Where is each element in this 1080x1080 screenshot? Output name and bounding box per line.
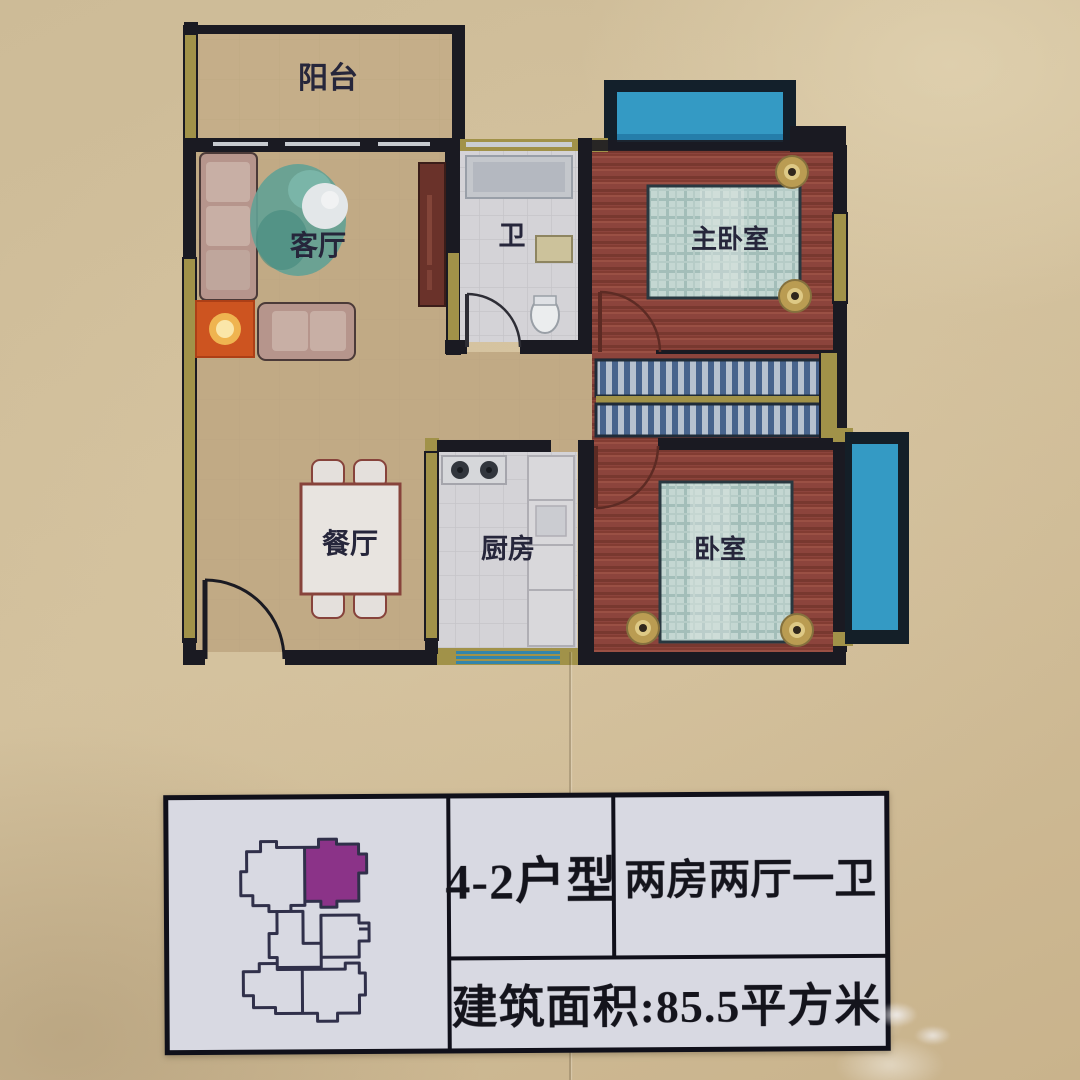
right-wall-upper	[833, 145, 847, 215]
bath-master-wall	[578, 138, 594, 354]
hallway-floor-grid	[446, 352, 602, 452]
dining-kitchen-wall	[425, 452, 438, 640]
room-bedroom: 卧室	[592, 428, 909, 652]
nightstand	[776, 156, 808, 188]
kitchen-wall-cap	[425, 638, 438, 654]
nightstand	[779, 280, 811, 312]
info-table: 4-2户型 两房两厅一卫 建筑面积:85.5平方米	[163, 791, 891, 1055]
room-label-kitchen: 厨房	[481, 534, 535, 564]
sofa-cushion	[206, 206, 250, 246]
balcony-top-wall	[183, 25, 464, 34]
nightstand	[781, 614, 813, 646]
wardrobe-bottom	[596, 404, 822, 436]
room-label-master-bedroom: 主卧室	[691, 224, 769, 254]
kitchen-top-wall	[437, 440, 551, 452]
bottom-wall-mid	[285, 650, 437, 665]
tv-cabinet	[419, 163, 445, 306]
balcony-left-window	[184, 34, 197, 142]
room-bathroom: 卫	[445, 139, 594, 354]
room-label-balcony: 阳台	[298, 61, 358, 95]
room-label-bedroom: 卧室	[694, 534, 746, 564]
balcony-sliding-door	[183, 138, 465, 152]
key-plan-unit	[243, 963, 365, 1022]
room-kitchen: 厨房	[425, 438, 594, 654]
sofa-cushion	[206, 250, 250, 290]
wardrobes	[592, 352, 838, 444]
nightstand	[627, 612, 659, 644]
key-plan-tab	[359, 929, 369, 941]
living-bath-wall-khaki	[447, 252, 460, 354]
kitchen-window-glass	[456, 661, 560, 664]
sofa-cushion	[206, 162, 250, 202]
area-cell: 建筑面积:85.5平方米	[447, 958, 886, 1049]
key-plan	[168, 798, 448, 1050]
sliding-door-glass	[213, 142, 268, 146]
layout-cell: 两房两厅一卫	[615, 796, 885, 956]
bottom-wall-left	[183, 650, 205, 665]
left-wall-upper	[183, 138, 196, 260]
kitchen-window-glass	[456, 651, 560, 654]
sliding-door-glass	[285, 142, 360, 146]
room-label-living: 客厅	[290, 229, 346, 261]
room-label-bathroom: 卫	[499, 221, 526, 251]
sofa-cushion	[310, 311, 346, 351]
balcony-right-wall	[452, 25, 465, 142]
bathroom-bottom-wall-left	[445, 340, 467, 354]
key-plan-highlighted-unit	[304, 839, 366, 907]
master-right-window	[833, 213, 847, 303]
key-plan-core	[269, 911, 321, 967]
rug-with-lamp	[196, 301, 254, 357]
sliding-door-glass	[378, 142, 430, 146]
watermark-remnant	[869, 990, 959, 1051]
bathroom-window-glass	[466, 142, 572, 147]
wardrobe-top	[596, 360, 822, 396]
left-wall-window	[183, 258, 196, 642]
unit-type-cell: 4-2户型	[450, 797, 612, 956]
kitchen-window-glass	[456, 656, 560, 659]
key-plan-unit	[240, 841, 304, 911]
room-label-dining: 餐厅	[322, 528, 378, 559]
room-balcony: 阳台	[183, 22, 465, 142]
sink-cabinet	[536, 236, 572, 262]
key-plan-core	[321, 915, 369, 957]
bedroom-top-wall	[658, 438, 845, 450]
right-wall-lower	[833, 440, 847, 652]
stove	[442, 456, 506, 484]
shower-inner	[473, 162, 565, 192]
toilet-tank	[534, 296, 556, 305]
kitchen-bedroom-wall	[578, 440, 594, 652]
sofa-cushion	[272, 311, 308, 351]
living-bath-wall	[445, 138, 460, 254]
floor-plan-photo: 阳台	[0, 0, 1080, 1080]
bedroom-bay-window	[852, 444, 898, 630]
